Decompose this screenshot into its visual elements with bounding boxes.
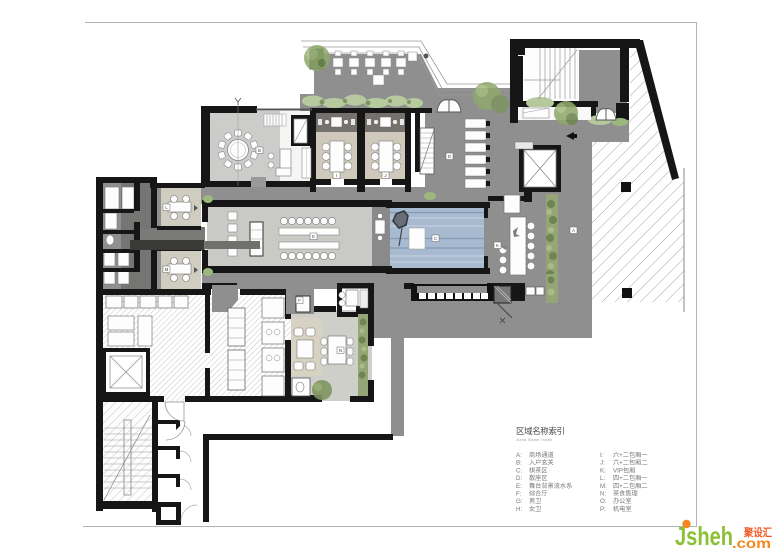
- svg-text:聚设汇: 聚设汇: [743, 526, 772, 539]
- svg-text:I: I: [336, 173, 337, 178]
- svg-text:六+二包厢二: 六+二包厢二: [613, 459, 648, 467]
- svg-text:六+二包厢一: 六+二包厢一: [613, 451, 648, 459]
- svg-text:A: A: [572, 228, 575, 233]
- svg-text:四+二包厢二: 四+二包厢二: [613, 482, 648, 490]
- svg-text:P:: P:: [600, 506, 606, 513]
- svg-text:棋茶区: 棋茶区: [529, 466, 548, 474]
- svg-text:A:: A:: [516, 452, 522, 459]
- svg-text:G:: G:: [516, 498, 523, 505]
- svg-text:舞台背景流水系: 舞台背景流水系: [529, 482, 572, 490]
- svg-text:茶食售理: 茶食售理: [613, 490, 638, 498]
- svg-text:E: E: [312, 234, 315, 239]
- svg-text:VIP包厢: VIP包厢: [613, 466, 635, 474]
- svg-text:女卫: 女卫: [529, 505, 541, 513]
- svg-text:散座区: 散座区: [529, 474, 548, 482]
- svg-text:J: J: [384, 173, 386, 178]
- svg-text:J:: J:: [600, 460, 605, 467]
- svg-text:办公室: 办公室: [613, 497, 632, 505]
- svg-text:K: K: [496, 243, 499, 248]
- svg-text:D:: D:: [516, 475, 522, 482]
- svg-text:O:: O:: [600, 498, 607, 505]
- svg-text:Area Name Index: Area Name Index: [517, 438, 553, 442]
- svg-text:M: M: [165, 267, 169, 272]
- svg-text:E:: E:: [516, 483, 522, 490]
- svg-text:I:: I:: [600, 452, 604, 459]
- svg-text:综合厅: 综合厅: [529, 490, 548, 498]
- svg-text:K:: K:: [600, 467, 606, 474]
- svg-text:机电室: 机电室: [613, 505, 632, 513]
- svg-text:F: F: [298, 298, 301, 303]
- svg-text:F:: F:: [516, 491, 522, 498]
- svg-text:M:: M:: [600, 483, 607, 490]
- svg-text:商场通道: 商场通道: [529, 451, 554, 459]
- svg-text:N:: N:: [600, 491, 606, 498]
- svg-text:H:: H:: [516, 506, 522, 513]
- svg-text:男卫: 男卫: [529, 498, 541, 505]
- svg-text:B:: B:: [516, 460, 522, 467]
- svg-text:C:: C:: [516, 467, 522, 474]
- svg-text:入户玄关: 入户玄关: [529, 459, 554, 467]
- svg-text:L:: L:: [600, 475, 605, 482]
- svg-text:区域名称索引: 区域名称索引: [516, 426, 565, 436]
- svg-text:N: N: [339, 348, 342, 353]
- svg-text:四+二包厢一: 四+二包厢一: [613, 474, 648, 482]
- svg-text:B: B: [258, 148, 261, 153]
